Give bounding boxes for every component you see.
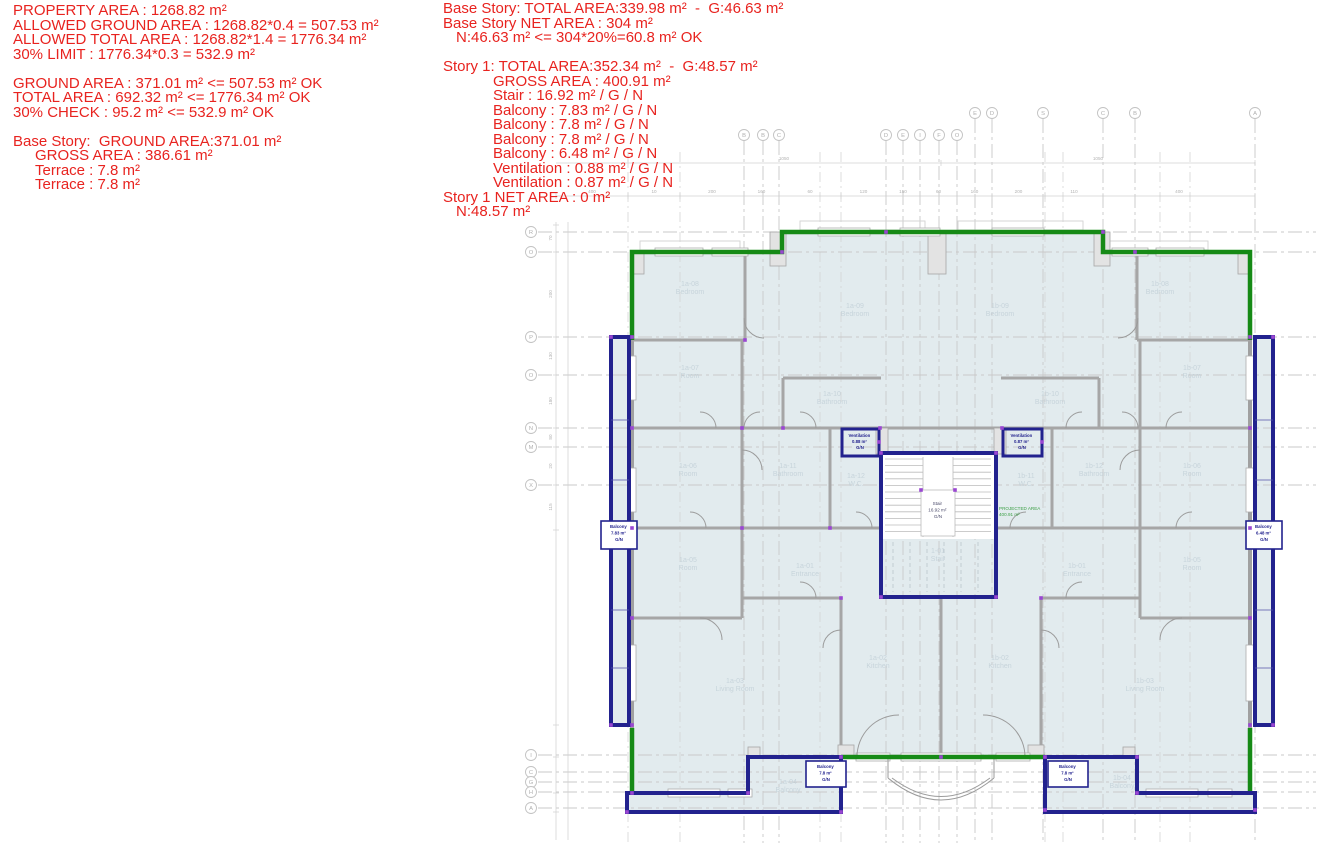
grip-point [1248,335,1252,339]
grip-point [1000,426,1004,430]
room-label: 1b-06Room [1183,463,1202,478]
calc-line: N:48.57 m² [456,205,783,220]
grip-point [630,616,634,620]
grip-point [630,791,634,795]
grip-point [1039,596,1043,600]
grip-point [609,723,613,727]
room-label: 1a-05Room [679,557,698,572]
grip-point [879,595,883,599]
dimension-value: 1050 [1093,156,1104,161]
calc-line: N:46.63 m² <= 304*20%=60.8 m² OK [456,31,783,46]
dimension-value: 70 [548,235,553,241]
dimension-value: 20 [548,463,553,469]
room-label: 1b-07Room [1183,365,1202,380]
dimension-value: 120 [860,189,868,194]
room-label: 1a-12W.C. [847,473,865,488]
grip-point [630,335,634,339]
grip-point [1248,426,1252,430]
dimension-value: 160 [971,189,979,194]
area-calculations-right: Base Story: TOTAL AREA:339.98 m² - G:46.… [443,2,783,220]
grip-point [1248,723,1252,727]
grid-bubble-label: D [990,111,994,117]
grip-point [1271,335,1275,339]
stair-landing [921,490,955,536]
wall-pier [928,232,946,274]
grip-point [625,810,629,814]
dimension-value: 180 [548,397,553,405]
grid-bubble-label: E [973,111,977,117]
grip-point [1040,440,1044,444]
cad-drawing-viewport[interactable]: 1050105040010200160601201506016020011040… [0,0,1325,845]
room-label: 1b-02Kitchen [988,655,1011,670]
grip-point [939,755,943,759]
grid-bubble-label: O [955,133,960,139]
grid-bubble-label: G [529,780,534,786]
grip-point [630,723,634,727]
grip-point [878,426,882,430]
grip-point [877,440,881,444]
grip-point [1135,791,1139,795]
dimension-value: 60 [807,189,813,194]
grip-point [746,791,750,795]
dimension-value: 200 [548,290,553,298]
grip-point [828,526,832,530]
dimension-value: 115 [548,503,553,511]
grid-bubble-label: M [529,445,534,451]
grid-bubble-label: X [529,483,533,489]
grid-bubble-label: A [1253,111,1257,117]
dimension-value: 80 [548,434,553,440]
grid-bubble-label: B [1133,111,1137,117]
window [1246,645,1254,701]
window [1246,356,1254,400]
room-label: 1a-02Kitchen [866,655,889,670]
grid-bubble-label: A [529,806,533,812]
grip-point [1135,755,1139,759]
dimension-value: 60 [936,189,942,194]
grip-point [839,810,843,814]
grip-point [994,451,998,455]
grip-point [1043,755,1047,759]
grip-point [630,526,634,530]
grip-point [1133,250,1137,254]
grip-point [1271,723,1275,727]
canopy-arc [888,757,994,800]
room-label: 1a-06Room [679,463,698,478]
grip-point [839,596,843,600]
grid-bubble-label: O [529,373,534,379]
grid-bubble-label: F [937,133,941,139]
grid-bubble-label: C [1101,111,1105,117]
grid-bubble-label: H [529,790,533,796]
grip-point [839,755,843,759]
grid-bubble-label: R [529,230,533,236]
grip-point [919,488,923,492]
dimension-value: 150 [899,189,907,194]
grip-point [1248,616,1252,620]
grip-point [994,595,998,599]
calc-line: 30% LIMIT : 1776.34*0.3 = 532.9 m² [13,48,379,63]
grip-point [953,488,957,492]
grid-bubble-label: P [529,335,533,341]
grip-point [884,230,888,234]
grid-bubble-label: S [1041,111,1045,117]
grip-point [1101,230,1105,234]
window [1246,468,1254,512]
grid-bubble-label: D [884,133,888,139]
grip-point [609,335,613,339]
grip-point [1043,808,1047,812]
room-label: 1-01Stair [931,548,946,563]
grip-point [740,526,744,530]
room-label: 1b-05Room [1183,557,1202,572]
grip-point [743,338,747,342]
grip-point [630,426,634,430]
grip-point [1248,526,1252,530]
dimension-value: 200 [1015,189,1023,194]
grip-point [740,426,744,430]
grid-bubble-label: O [529,250,534,256]
grid-bubble-label: N [529,426,533,432]
grip-point [879,451,883,455]
dimension-value: 130 [548,352,553,360]
area-calculations-left: PROPERTY AREA : 1268.82 m²ALLOWED GROUND… [13,4,379,193]
room-label: 1b-11W.C. [1017,473,1034,488]
room-label: 1a-07Room [681,365,700,380]
calc-line: 30% CHECK : 95.2 m² <= 532.9 m² OK [13,106,379,121]
grip-point [780,250,784,254]
dimension-value: 400 [1175,189,1183,194]
grid-bubble-label: C [529,770,533,776]
grip-point [1253,808,1257,812]
dimension-value: 110 [1070,189,1078,194]
grip-point [781,426,785,430]
calc-line: Terrace : 7.8 m² [35,178,379,193]
grid-bubble-label: E [901,133,905,139]
